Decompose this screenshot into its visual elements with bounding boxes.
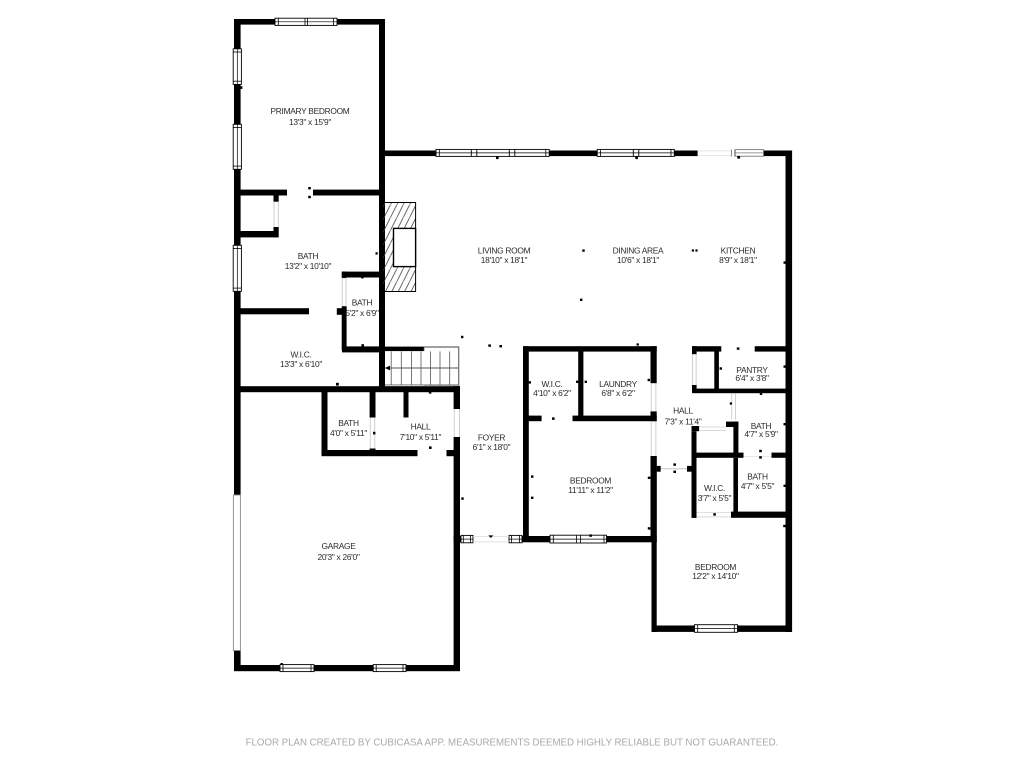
svg-text:3'7" x 5'5": 3'7" x 5'5": [698, 493, 732, 503]
svg-text:13'3" x 6'10": 13'3" x 6'10": [280, 359, 322, 369]
svg-text:BATH: BATH: [338, 418, 359, 428]
svg-text:4'10" x 6'2": 4'10" x 6'2": [533, 388, 571, 398]
svg-text:4'0" x 5'11": 4'0" x 5'11": [330, 428, 367, 438]
svg-text:4'7" x 5'9": 4'7" x 5'9": [744, 429, 778, 439]
svg-text:W.I.C.: W.I.C.: [291, 349, 312, 359]
svg-text:FLOOR PLAN CREATED BY CUBICASA: FLOOR PLAN CREATED BY CUBICASA APP. MEAS…: [246, 738, 779, 749]
svg-text:4'7" x 5'5": 4'7" x 5'5": [741, 481, 775, 491]
svg-text:13'2" x 10'10": 13'2" x 10'10": [285, 261, 332, 271]
svg-text:13'3" x 15'9": 13'3" x 15'9": [289, 117, 331, 127]
svg-text:HALL: HALL: [411, 422, 431, 432]
svg-text:PRIMARY BEDROOM: PRIMARY BEDROOM: [271, 106, 350, 116]
svg-text:W.I.C.: W.I.C.: [704, 483, 725, 493]
svg-text:10'6" x 18'1": 10'6" x 18'1": [617, 255, 659, 265]
svg-text:18'10" x 18'1": 18'10" x 18'1": [481, 255, 528, 265]
svg-text:HALL: HALL: [673, 405, 693, 415]
svg-text:6'1" x 18'0": 6'1" x 18'0": [473, 442, 511, 452]
svg-text:6'8" x 6'2": 6'8" x 6'2": [601, 388, 635, 398]
svg-text:BATH: BATH: [352, 298, 373, 308]
svg-text:8'9" x 18'1": 8'9" x 18'1": [719, 255, 757, 265]
svg-text:7'3" x 11'4": 7'3" x 11'4": [664, 416, 701, 426]
svg-text:12'2" x 14'10": 12'2" x 14'10": [692, 571, 739, 581]
svg-text:20'3" x 26'0": 20'3" x 26'0": [317, 552, 359, 562]
svg-text:GARAGE: GARAGE: [321, 541, 356, 551]
svg-text:7'10" x 5'11": 7'10" x 5'11": [400, 432, 442, 442]
svg-text:11'11" x 11'2": 11'11" x 11'2": [568, 485, 613, 495]
svg-text:5'2" x 6'9": 5'2" x 6'9": [345, 308, 379, 318]
svg-text:BATH: BATH: [298, 251, 319, 261]
svg-text:6'4" x 3'8": 6'4" x 3'8": [735, 373, 769, 383]
